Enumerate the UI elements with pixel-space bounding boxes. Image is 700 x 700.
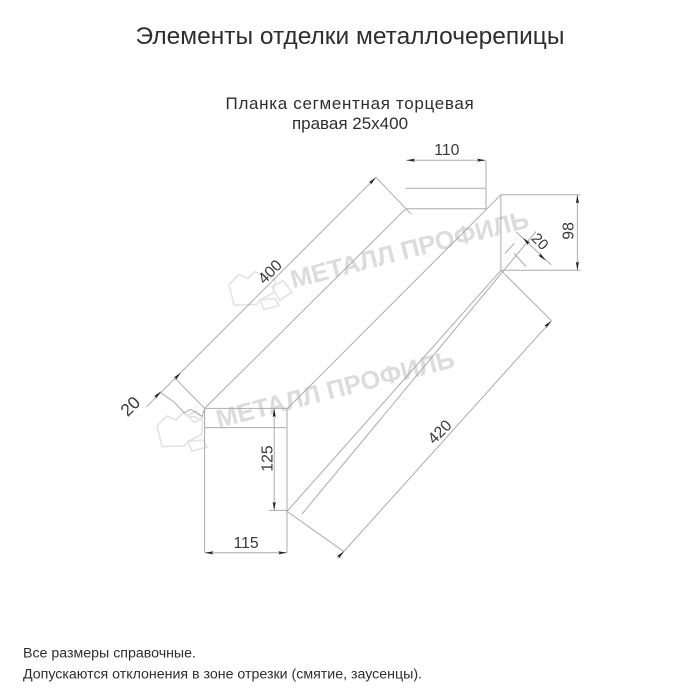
- svg-text:115: 115: [234, 535, 259, 552]
- svg-text:110: 110: [434, 142, 459, 159]
- svg-text:Планка сегментная торцевая: Планка сегментная торцевая: [226, 94, 475, 113]
- svg-text:Все размеры справочные.: Все размеры справочные.: [23, 646, 196, 662]
- svg-text:98: 98: [560, 222, 577, 240]
- svg-text:правая 25х400: правая 25х400: [292, 114, 408, 133]
- svg-text:20: 20: [528, 230, 552, 254]
- svg-text:20: 20: [116, 392, 144, 420]
- svg-text:125: 125: [260, 445, 277, 472]
- svg-text:Элементы отделки металлочерепи: Элементы отделки металлочерепицы: [136, 23, 565, 50]
- svg-text:Допускаются отклонения в зоне: Допускаются отклонения в зоне отрезки (с…: [23, 666, 422, 682]
- svg-text:400: 400: [255, 257, 286, 288]
- svg-text:420: 420: [425, 417, 456, 448]
- svg-text:МЕТАЛЛ ПРОФИЛЬ: МЕТАЛЛ ПРОФИЛЬ: [213, 345, 457, 433]
